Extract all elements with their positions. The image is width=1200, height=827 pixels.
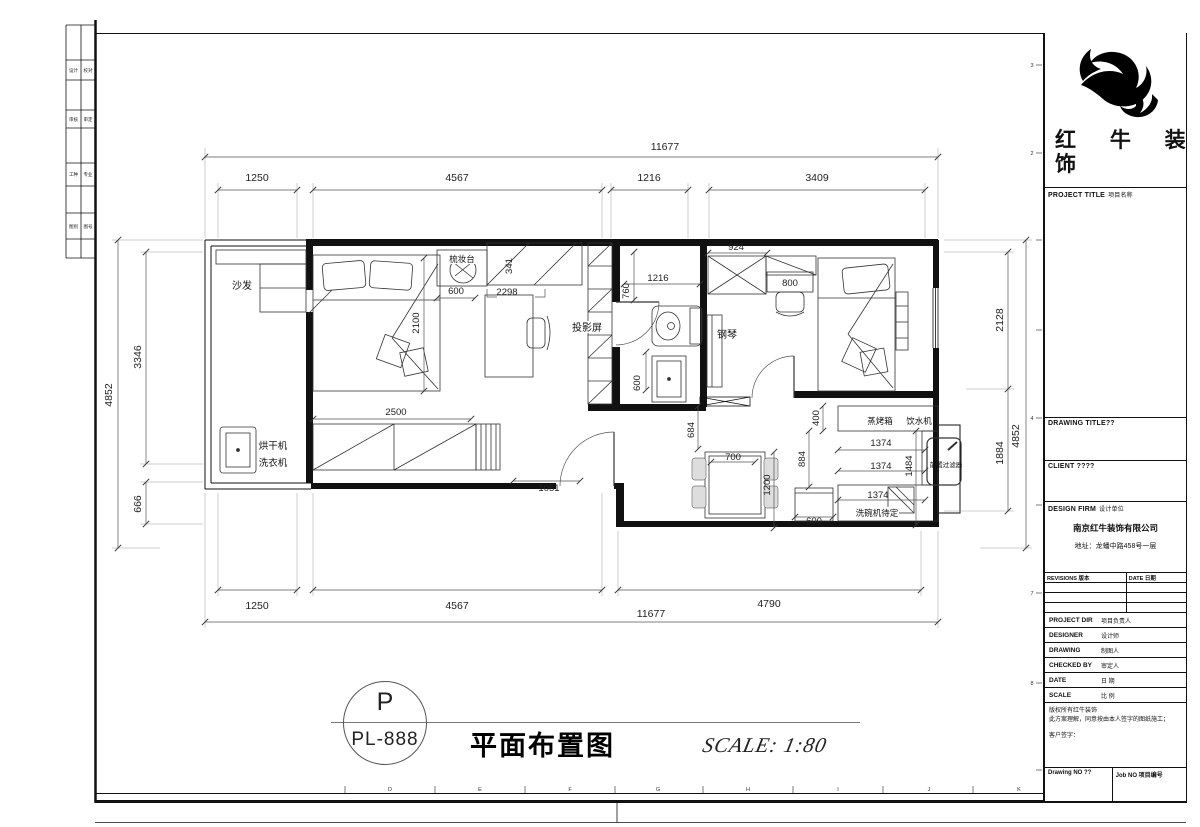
copyright-line1: 版权所有红牛装饰 xyxy=(1049,707,1182,716)
strip-cell: 审定 xyxy=(84,116,93,123)
company-logo-text: 红 牛 装 饰 xyxy=(1055,129,1175,177)
strip-cell: 审核 xyxy=(69,116,78,123)
grid-letter: K xyxy=(1017,787,1021,793)
door-bedroom2 xyxy=(752,356,794,398)
grid-letter: J xyxy=(928,787,931,793)
label-prefilter: 前置过滤器 xyxy=(930,460,963,469)
furniture xyxy=(216,243,961,521)
dim-top-total: 11677 xyxy=(651,141,680,153)
dim-bottom-4567: 4567 xyxy=(445,600,469,612)
door-entry xyxy=(560,432,614,486)
client-label: CLIENT ???? xyxy=(1048,463,1095,470)
grid-letter: F xyxy=(568,787,572,793)
dim-bottom-total: 11677 xyxy=(637,608,666,620)
dim-right-total: 4852 xyxy=(1010,424,1022,448)
label-washer: 洗衣机 xyxy=(259,457,288,469)
dim-dresser-600: 600 xyxy=(448,286,464,297)
piano xyxy=(707,315,722,387)
desk xyxy=(485,295,533,377)
label-water-dispenser: 饮水机 xyxy=(906,416,932,426)
strip-cell: 图号 xyxy=(84,224,93,230)
dim-left-3346: 3346 xyxy=(132,345,144,369)
label-sofa: 沙发 xyxy=(232,279,252,292)
dim-bath-600: 600 xyxy=(632,375,643,391)
row-label: DESIGNER xyxy=(1049,632,1101,639)
row-label-cn: 项目负责人 xyxy=(1101,616,1131,625)
dim-table-1200: 1200 xyxy=(762,474,773,495)
rednull-bull-logo-icon xyxy=(1045,33,1186,128)
client-signature-label: 客户签字： xyxy=(1049,732,1182,741)
dim-top-1250: 1250 xyxy=(245,172,269,184)
grid-letters: D E F G H I J K xyxy=(345,786,1063,793)
row-label-cn: 制图人 xyxy=(1101,646,1119,655)
dim-top-1216: 1216 xyxy=(637,172,661,184)
label-projector-screen: 投影屏 xyxy=(572,321,602,334)
grid-letter: D xyxy=(388,787,392,793)
dim-1374-b: 1374 xyxy=(870,461,891,472)
grid-letter: G xyxy=(656,787,660,793)
row-label-cn: 设计师 xyxy=(1101,631,1119,640)
row-label: CHECKED BY xyxy=(1049,662,1101,669)
drawing-scale: SCALE: 1:80 xyxy=(700,733,829,758)
grid-number: 4 xyxy=(1030,416,1033,422)
sofa xyxy=(216,250,306,312)
grid-number: 2 xyxy=(1030,151,1033,157)
closet-x-box xyxy=(708,256,766,294)
row-date: DATE日 期 xyxy=(1045,673,1186,688)
dim-desk-2298: 2298 xyxy=(496,287,517,298)
copyright-line2: 此方案理解，同意按由本人签字的图纸施工； xyxy=(1049,716,1182,725)
grid-number: 3 xyxy=(1030,63,1033,69)
dim-884: 884 xyxy=(797,451,808,467)
door-bathroom xyxy=(616,302,659,345)
dim-right-1884: 1884 xyxy=(994,441,1006,465)
dim-left-total: 4852 xyxy=(103,383,115,407)
dimension-lines xyxy=(112,148,1032,628)
cad-sheet: 设计 校对 审核 审定 工种 专业 图别 图号 D E F G H I J K xyxy=(0,0,1200,827)
logo-section: 红 牛 装 饰 xyxy=(1045,33,1186,188)
bubble-code: PL-888 xyxy=(344,722,426,758)
dim-1484: 1484 xyxy=(904,455,915,476)
grid-letter: E xyxy=(478,787,482,793)
bed-2 xyxy=(818,258,895,391)
row-project-dir: PROJECT DIR项目负责人 xyxy=(1045,613,1186,628)
row-label-cn: 比 例 xyxy=(1101,691,1115,700)
washer-dryer-balcony xyxy=(220,427,256,473)
grid-letter: I xyxy=(837,787,839,793)
washing-machine-bathroom xyxy=(652,356,686,402)
revisions-table: REVISIONS 版本DATE 日期 xyxy=(1045,573,1186,613)
label-dishwasher: 洗碗机待定 xyxy=(856,508,899,518)
dim-left-666: 666 xyxy=(132,495,144,513)
dim-fridge-600: 600 xyxy=(806,516,822,527)
dim-top-3409: 3409 xyxy=(805,172,829,184)
strip-cell: 工种 xyxy=(69,171,78,178)
drawing-title-label: DRAWING TITLE?? xyxy=(1048,420,1115,427)
drawing-name: 平面布置图 xyxy=(470,724,615,763)
closet-top-bedroom1 xyxy=(487,243,582,285)
dim-closet-924: 924 xyxy=(728,242,744,253)
company-address: 地址：龙蟠中路458号一层 xyxy=(1045,541,1186,551)
dim-bath-760: 760 xyxy=(621,283,632,299)
dim-400: 400 xyxy=(811,410,822,426)
job-no-label: Job NO 项目编号 xyxy=(1113,768,1166,801)
wardrobe xyxy=(313,424,500,470)
drawing-no-label: Drawing NO ?? xyxy=(1045,768,1113,801)
dim-table-700: 700 xyxy=(725,452,741,463)
drawing-title-section: DRAWING TITLE?? xyxy=(1045,418,1186,461)
dimension-text: 11677 1250 4567 1216 3409 1250 4567 4790… xyxy=(103,141,1022,620)
grid-number: 8 xyxy=(1030,681,1033,687)
walls xyxy=(205,239,960,527)
design-firm-section: DESIGN FIRM设计单位 南京红牛装饰有限公司 地址：龙蟠中路458号一层 xyxy=(1045,502,1186,573)
drawing-reference-bubble: P PL-888 xyxy=(343,681,427,765)
stool xyxy=(776,292,804,316)
dim-bath-1216: 1216 xyxy=(647,273,668,284)
sheet-frame xyxy=(95,20,1186,823)
dim-684: 684 xyxy=(686,422,697,438)
company-name: 南京红牛装饰有限公司 xyxy=(1045,522,1186,534)
copyright-section: 版权所有红牛装饰 此方案理解，同意按由本人签字的图纸施工； 客户签字： xyxy=(1045,703,1186,768)
dim-1374-a: 1374 xyxy=(870,438,891,449)
dim-bed1-2100: 2100 xyxy=(411,312,422,333)
project-title-section: PROJECT TITLE项目名称 xyxy=(1045,188,1186,418)
row-label: SCALE xyxy=(1049,692,1101,699)
strip-cell: 专业 xyxy=(84,171,93,178)
bubble-letter: P xyxy=(344,682,426,722)
grid-numbers: 3 2 4 7 8 xyxy=(1030,63,1042,770)
row-scale: SCALE比 例 xyxy=(1045,688,1186,703)
dim-entry-1051: 1051 xyxy=(538,483,559,494)
row-label: DRAWING xyxy=(1049,647,1101,654)
strip-cell: 校对 xyxy=(84,67,93,74)
grid-number: 7 xyxy=(1030,591,1033,597)
label-piano: 钢琴 xyxy=(717,328,737,341)
dim-shelf-341: 341 xyxy=(504,258,515,274)
drawing-number-section: Drawing NO ?? Job NO 项目编号 xyxy=(1045,768,1186,801)
row-label-cn: 审定人 xyxy=(1101,661,1119,670)
dim-shelf-800: 800 xyxy=(782,278,798,289)
strip-cell: 设计 xyxy=(69,67,78,74)
label-dryer: 烘干机 xyxy=(259,440,288,452)
window-bedroom2 xyxy=(933,288,938,348)
row-drawing: DRAWING制图人 xyxy=(1045,643,1186,658)
row-label: PROJECT DIR xyxy=(1049,617,1101,624)
project-title-label: PROJECT TITLE xyxy=(1048,192,1105,199)
toilet xyxy=(652,306,702,346)
row-label: DATE xyxy=(1049,677,1101,684)
desk-chair xyxy=(527,316,550,350)
label-steam-oven: 蒸烤箱 xyxy=(867,416,893,426)
title-block: 红 牛 装 饰 PROJECT TITLE项目名称 DRAWING TITLE?… xyxy=(1043,33,1186,801)
project-title-cn: 项目名称 xyxy=(1108,193,1133,199)
row-checked-by: CHECKED BY审定人 xyxy=(1045,658,1186,673)
dim-wardrobe-2500: 2500 xyxy=(385,407,406,418)
row-label-cn: 日 期 xyxy=(1101,676,1115,685)
dim-bottom-4790: 4790 xyxy=(757,598,781,610)
design-firm-label: DESIGN FIRM xyxy=(1048,506,1096,513)
new-wall-hatched xyxy=(700,397,750,406)
row-designer: DESIGNER设计师 xyxy=(1045,628,1186,643)
floor-plan-canvas: 设计 校对 审核 审定 工种 专业 图别 图号 D E F G H I J K xyxy=(0,0,1200,827)
dim-top-4567: 4567 xyxy=(445,172,469,184)
dim-right-2128: 2128 xyxy=(994,308,1006,332)
revisions-header: REVISIONS 版本 xyxy=(1045,573,1127,582)
client-section: CLIENT ???? xyxy=(1045,461,1186,502)
design-firm-cn: 设计单位 xyxy=(1099,507,1124,513)
radiator xyxy=(896,292,908,350)
label-dresser: 梳妆台 xyxy=(449,254,475,264)
grid-letter: H xyxy=(746,787,750,793)
dim-bottom-1250: 1250 xyxy=(245,600,269,612)
strip-cell: 图别 xyxy=(69,223,78,230)
dim-1374-c: 1374 xyxy=(867,490,888,501)
revisions-date-header: DATE 日期 xyxy=(1127,573,1186,582)
dimension-ticks xyxy=(115,154,1029,625)
